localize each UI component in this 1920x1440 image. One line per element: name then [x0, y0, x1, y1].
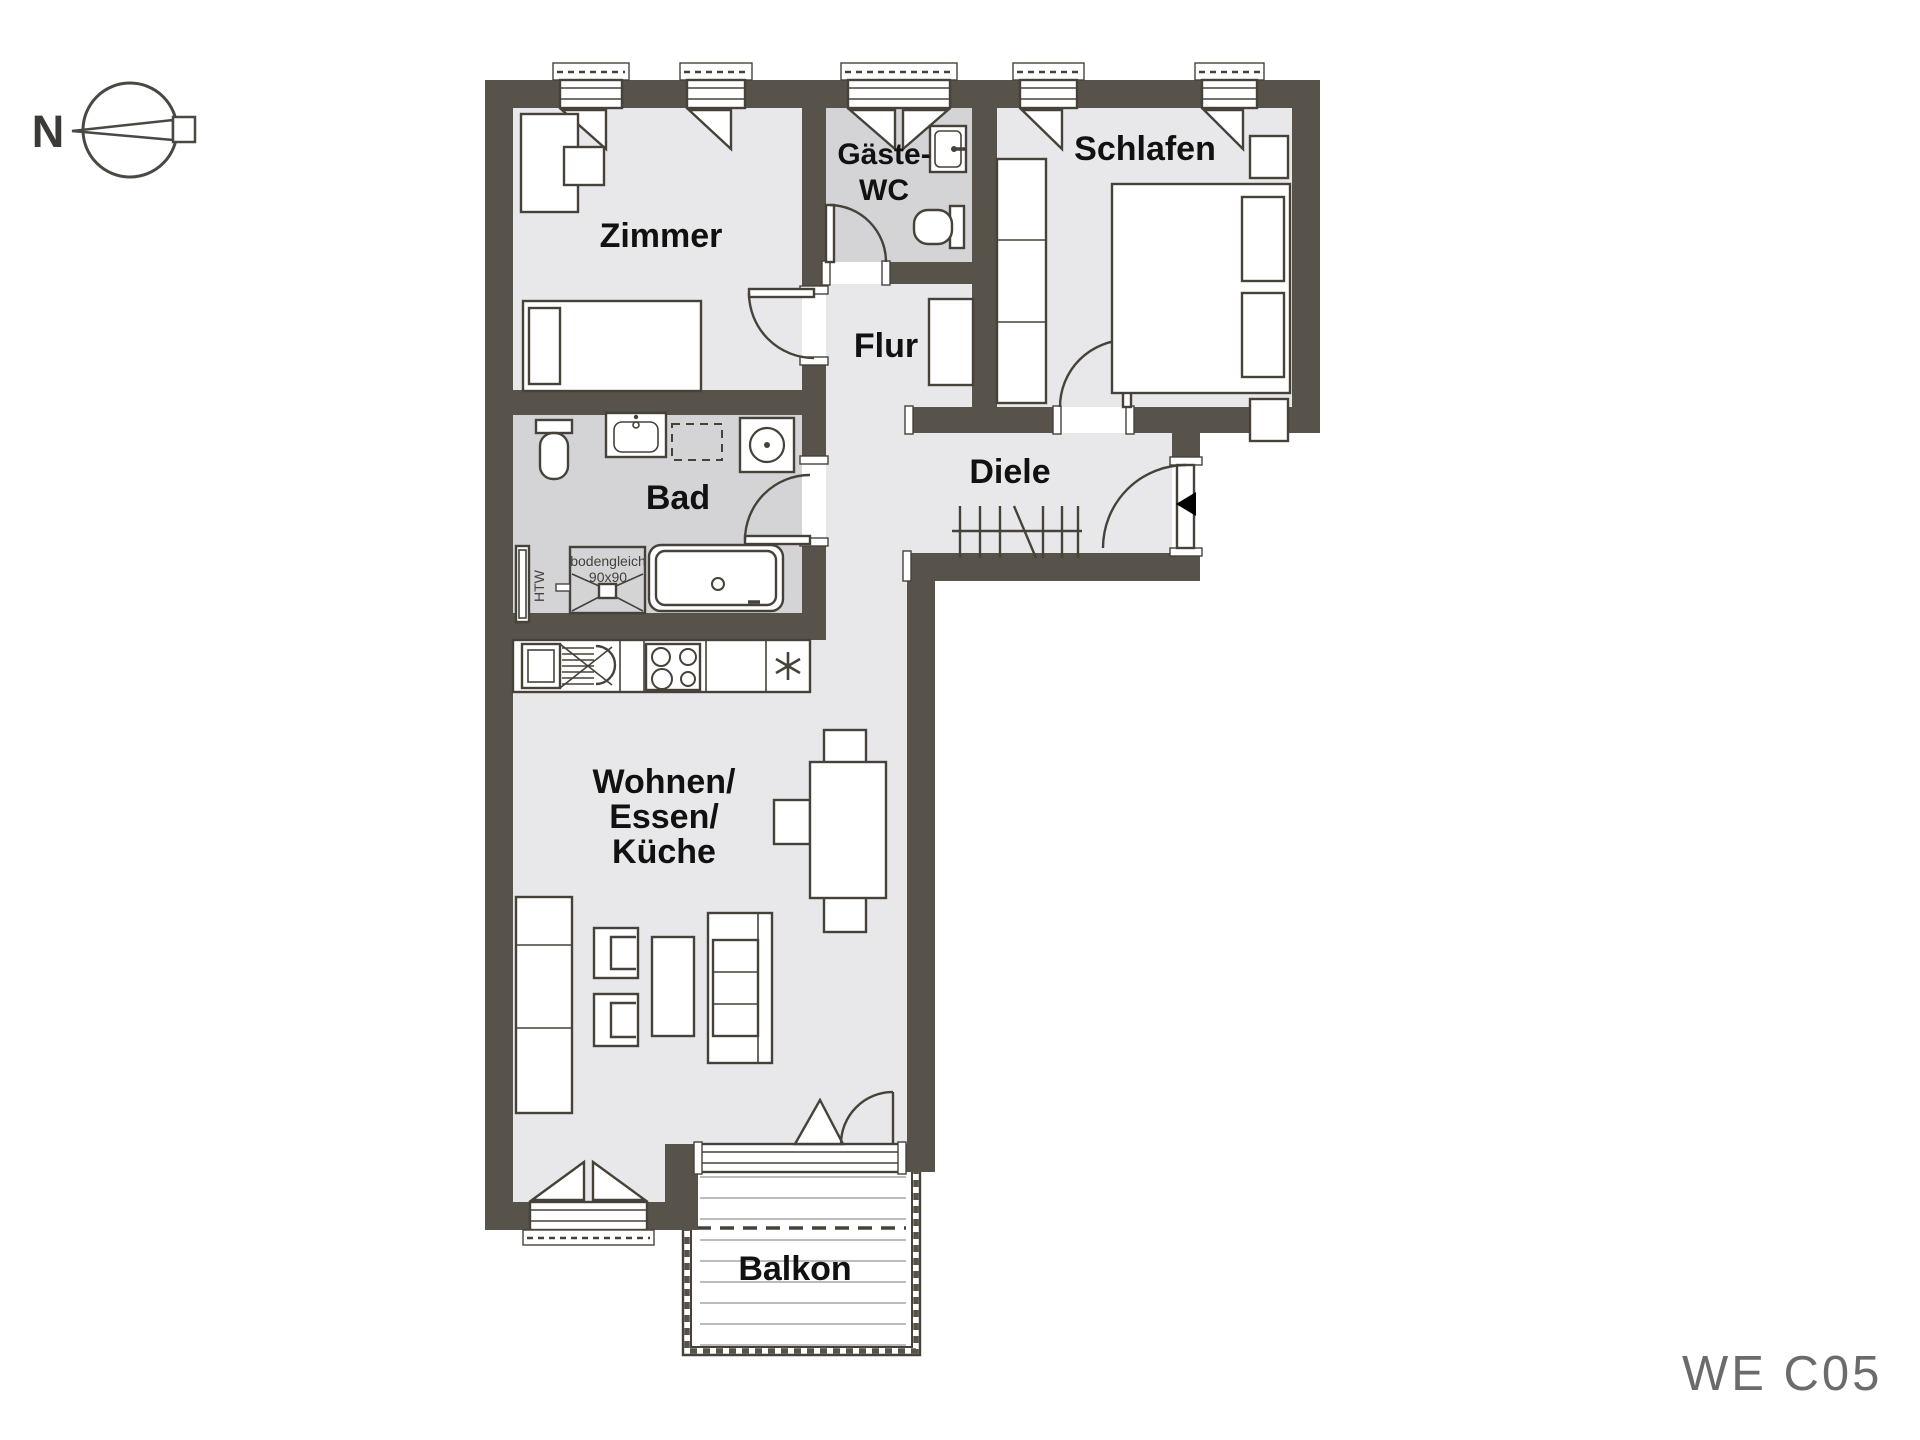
side-table: [564, 147, 604, 185]
balkon-label: Balkon: [738, 1250, 851, 1288]
wohnen-label-line3: Küche: [612, 833, 716, 871]
diele-label: Diele: [969, 453, 1050, 491]
bed-pillow: [1242, 197, 1284, 281]
unit-number-label: WE C05: [1682, 1347, 1882, 1401]
window-sill: [1195, 63, 1264, 80]
dining-chair-left: [774, 800, 810, 844]
door-jamb: [822, 261, 830, 285]
door-threshold: [1060, 407, 1127, 433]
wardrobe: [997, 159, 1046, 403]
toilet-tank: [536, 420, 572, 433]
door-threshold: [698, 1144, 900, 1172]
wall-bad-kitchen: [513, 613, 826, 640]
window-opening: [1202, 80, 1257, 108]
towel-radiator-label: HTW: [531, 569, 547, 602]
bathtub: [649, 545, 783, 611]
armchair-outline: [594, 928, 638, 978]
compass: N: [32, 83, 195, 177]
wall-schlafen-bottom-right: [1127, 407, 1320, 433]
wall-right-schlafen: [1292, 80, 1320, 433]
wall-bottom-left-b: [647, 1202, 698, 1230]
door-jamb: [1053, 406, 1061, 434]
door-jamb: [1126, 406, 1134, 434]
nightstand-top: [1250, 136, 1288, 178]
sink-drainer-lines: [562, 648, 594, 684]
door-leaf: [826, 205, 834, 262]
window-opening: [560, 80, 622, 108]
wohnen-label-line2: Essen/: [609, 798, 719, 836]
bed-pillow: [1242, 293, 1284, 377]
hall-closet: [929, 299, 973, 385]
schlafen-label: Schlafen: [1074, 130, 1216, 168]
wall-bottom-left-a: [485, 1202, 530, 1230]
window-opening: [848, 80, 950, 108]
compass-needle-tail: [173, 117, 195, 142]
toilet-bowl: [540, 433, 568, 479]
wall-end-jamb: [905, 406, 913, 434]
door-jamb: [694, 1142, 702, 1174]
dining-chair-top: [824, 730, 866, 766]
wall-end-jamb: [903, 551, 911, 581]
dining-chair-bottom: [824, 896, 866, 932]
shower-valve: [556, 584, 570, 591]
shower-drain: [599, 584, 616, 598]
gaeste-wc-label-line1: Gäste-: [837, 138, 930, 171]
wall-diele-bottom: [907, 553, 1200, 581]
coffee-table: [652, 937, 694, 1036]
dining-table: [810, 762, 886, 898]
window-opening: [530, 1202, 647, 1230]
bed-pillow: [529, 308, 560, 384]
sofa: [708, 913, 772, 1063]
bad-label: Bad: [646, 479, 710, 517]
window-opening: [1020, 80, 1077, 108]
door-jamb: [898, 1142, 906, 1174]
wall-wc-schlafen: [972, 108, 997, 433]
vanity-sink: [606, 413, 666, 457]
shelving-unit: [516, 897, 572, 1113]
armchair: [594, 994, 638, 1046]
armchair: [594, 928, 638, 978]
door-jamb: [882, 261, 890, 285]
sofa-outline: [708, 913, 772, 1063]
floor-plan-canvas: N Zimmer Gäste- WC Schlafen Flur Diele B…: [0, 0, 1920, 1440]
shower-note-line2: 90x90: [589, 569, 627, 585]
wohnen-label-line1: Wohnen/: [593, 763, 736, 801]
zimmer-label: Zimmer: [600, 217, 723, 255]
wc-sink-tap-dot: [951, 146, 957, 152]
compass-needle-icon: [72, 120, 173, 140]
nightstand-bottom: [1250, 399, 1288, 441]
compass-north-label: N: [32, 106, 65, 157]
door-threshold: [802, 293, 826, 358]
shower-note-line1: bodengleich: [570, 553, 646, 569]
door-jamb: [800, 456, 828, 464]
door-leaf: [749, 289, 814, 297]
floor-plan-page: N Zimmer Gäste- WC Schlafen Flur Diele B…: [0, 0, 1920, 1440]
vanity-tap-dot: [634, 415, 638, 419]
gaeste-wc-label-line2: WC: [859, 174, 909, 207]
door-threshold: [826, 262, 886, 284]
washing-machine-dot: [764, 442, 770, 448]
wall-wc-bottom: [886, 262, 972, 284]
wall-left: [485, 80, 513, 1230]
towel-radiator: [516, 546, 529, 622]
door-jamb: [1170, 548, 1202, 556]
wc-toilet-bowl: [914, 210, 952, 244]
wall-wohnen-right: [907, 553, 935, 1172]
wall-zimmer-bad: [513, 390, 826, 415]
flur-label: Flur: [854, 327, 918, 365]
window-opening: [687, 80, 745, 108]
kitchen: [513, 640, 810, 692]
door-leaf: [745, 536, 810, 544]
